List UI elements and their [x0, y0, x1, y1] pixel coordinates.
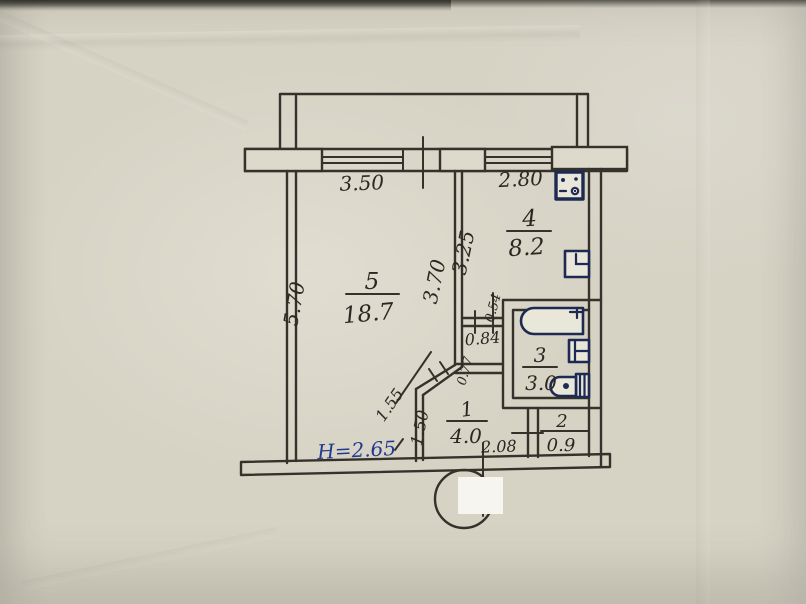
- window-living-frame: [322, 149, 403, 171]
- dimension-hall-side: 1.50: [407, 408, 433, 447]
- window-kitchen: [485, 157, 552, 163]
- room-number: 1: [459, 396, 475, 422]
- ceiling-height-note: H=2.65: [316, 436, 397, 464]
- window-living-room: [322, 157, 403, 163]
- room-number: 3: [534, 343, 547, 367]
- wall-pier-right: [552, 147, 627, 169]
- right-exterior-wall: [589, 169, 601, 467]
- room-area: 8.2: [507, 234, 545, 262]
- dimension-kitchen-window: 2.80: [497, 166, 544, 192]
- dimension-living-depth: 3.70: [418, 257, 451, 306]
- white-patch: [458, 477, 503, 514]
- room-label-living: 5 18.7: [342, 269, 399, 329]
- dimension-shaft-side: 0.54: [483, 292, 505, 324]
- dimension-hall-diagonal: 1.55: [371, 385, 407, 425]
- dimension-shaft-width: 0.84: [464, 328, 501, 350]
- room-area: 18.7: [342, 299, 396, 329]
- room-number: 2: [555, 411, 567, 432]
- floor-plan-drawing: 5 18.7 4 8.2 3 3.0 1 4.0 2 0.9 3.50 2.80…: [0, 0, 806, 604]
- room-number: 5: [365, 269, 380, 295]
- room-area: 4.0: [449, 424, 482, 448]
- scanned-floor-plan-photo: 5 18.7 4 8.2 3 3.0 1 4.0 2 0.9 3.50 2.80…: [0, 0, 806, 604]
- dimension-entry-width: 2.08: [480, 436, 517, 456]
- dimension-living-wall: 5.70: [278, 280, 309, 328]
- dimension-kitchen-depth: 3.25: [447, 228, 480, 277]
- washbasin-icon: [569, 340, 589, 362]
- dimension-door-offset: 0.77: [455, 354, 477, 387]
- room-label-toilet: 2 0.9: [541, 411, 589, 456]
- wall-pier-middle: [440, 149, 485, 171]
- stamp-circle: [435, 470, 503, 528]
- dimension-living-window: 3.50: [339, 170, 385, 196]
- room-area: 3.0: [525, 371, 557, 395]
- room-number: 4: [520, 206, 537, 233]
- balcony-outline: [280, 94, 588, 150]
- stove-icon: [556, 172, 583, 199]
- tick-mark: [395, 439, 403, 450]
- room-label-bathroom: 3 3.0: [523, 343, 557, 395]
- kitchen-sink-icon: [565, 251, 589, 277]
- bathtub-icon: [521, 308, 583, 334]
- room-label-kitchen: 4 8.2: [507, 206, 551, 263]
- wall-pier-left: [245, 149, 322, 171]
- room-area: 0.9: [547, 435, 576, 456]
